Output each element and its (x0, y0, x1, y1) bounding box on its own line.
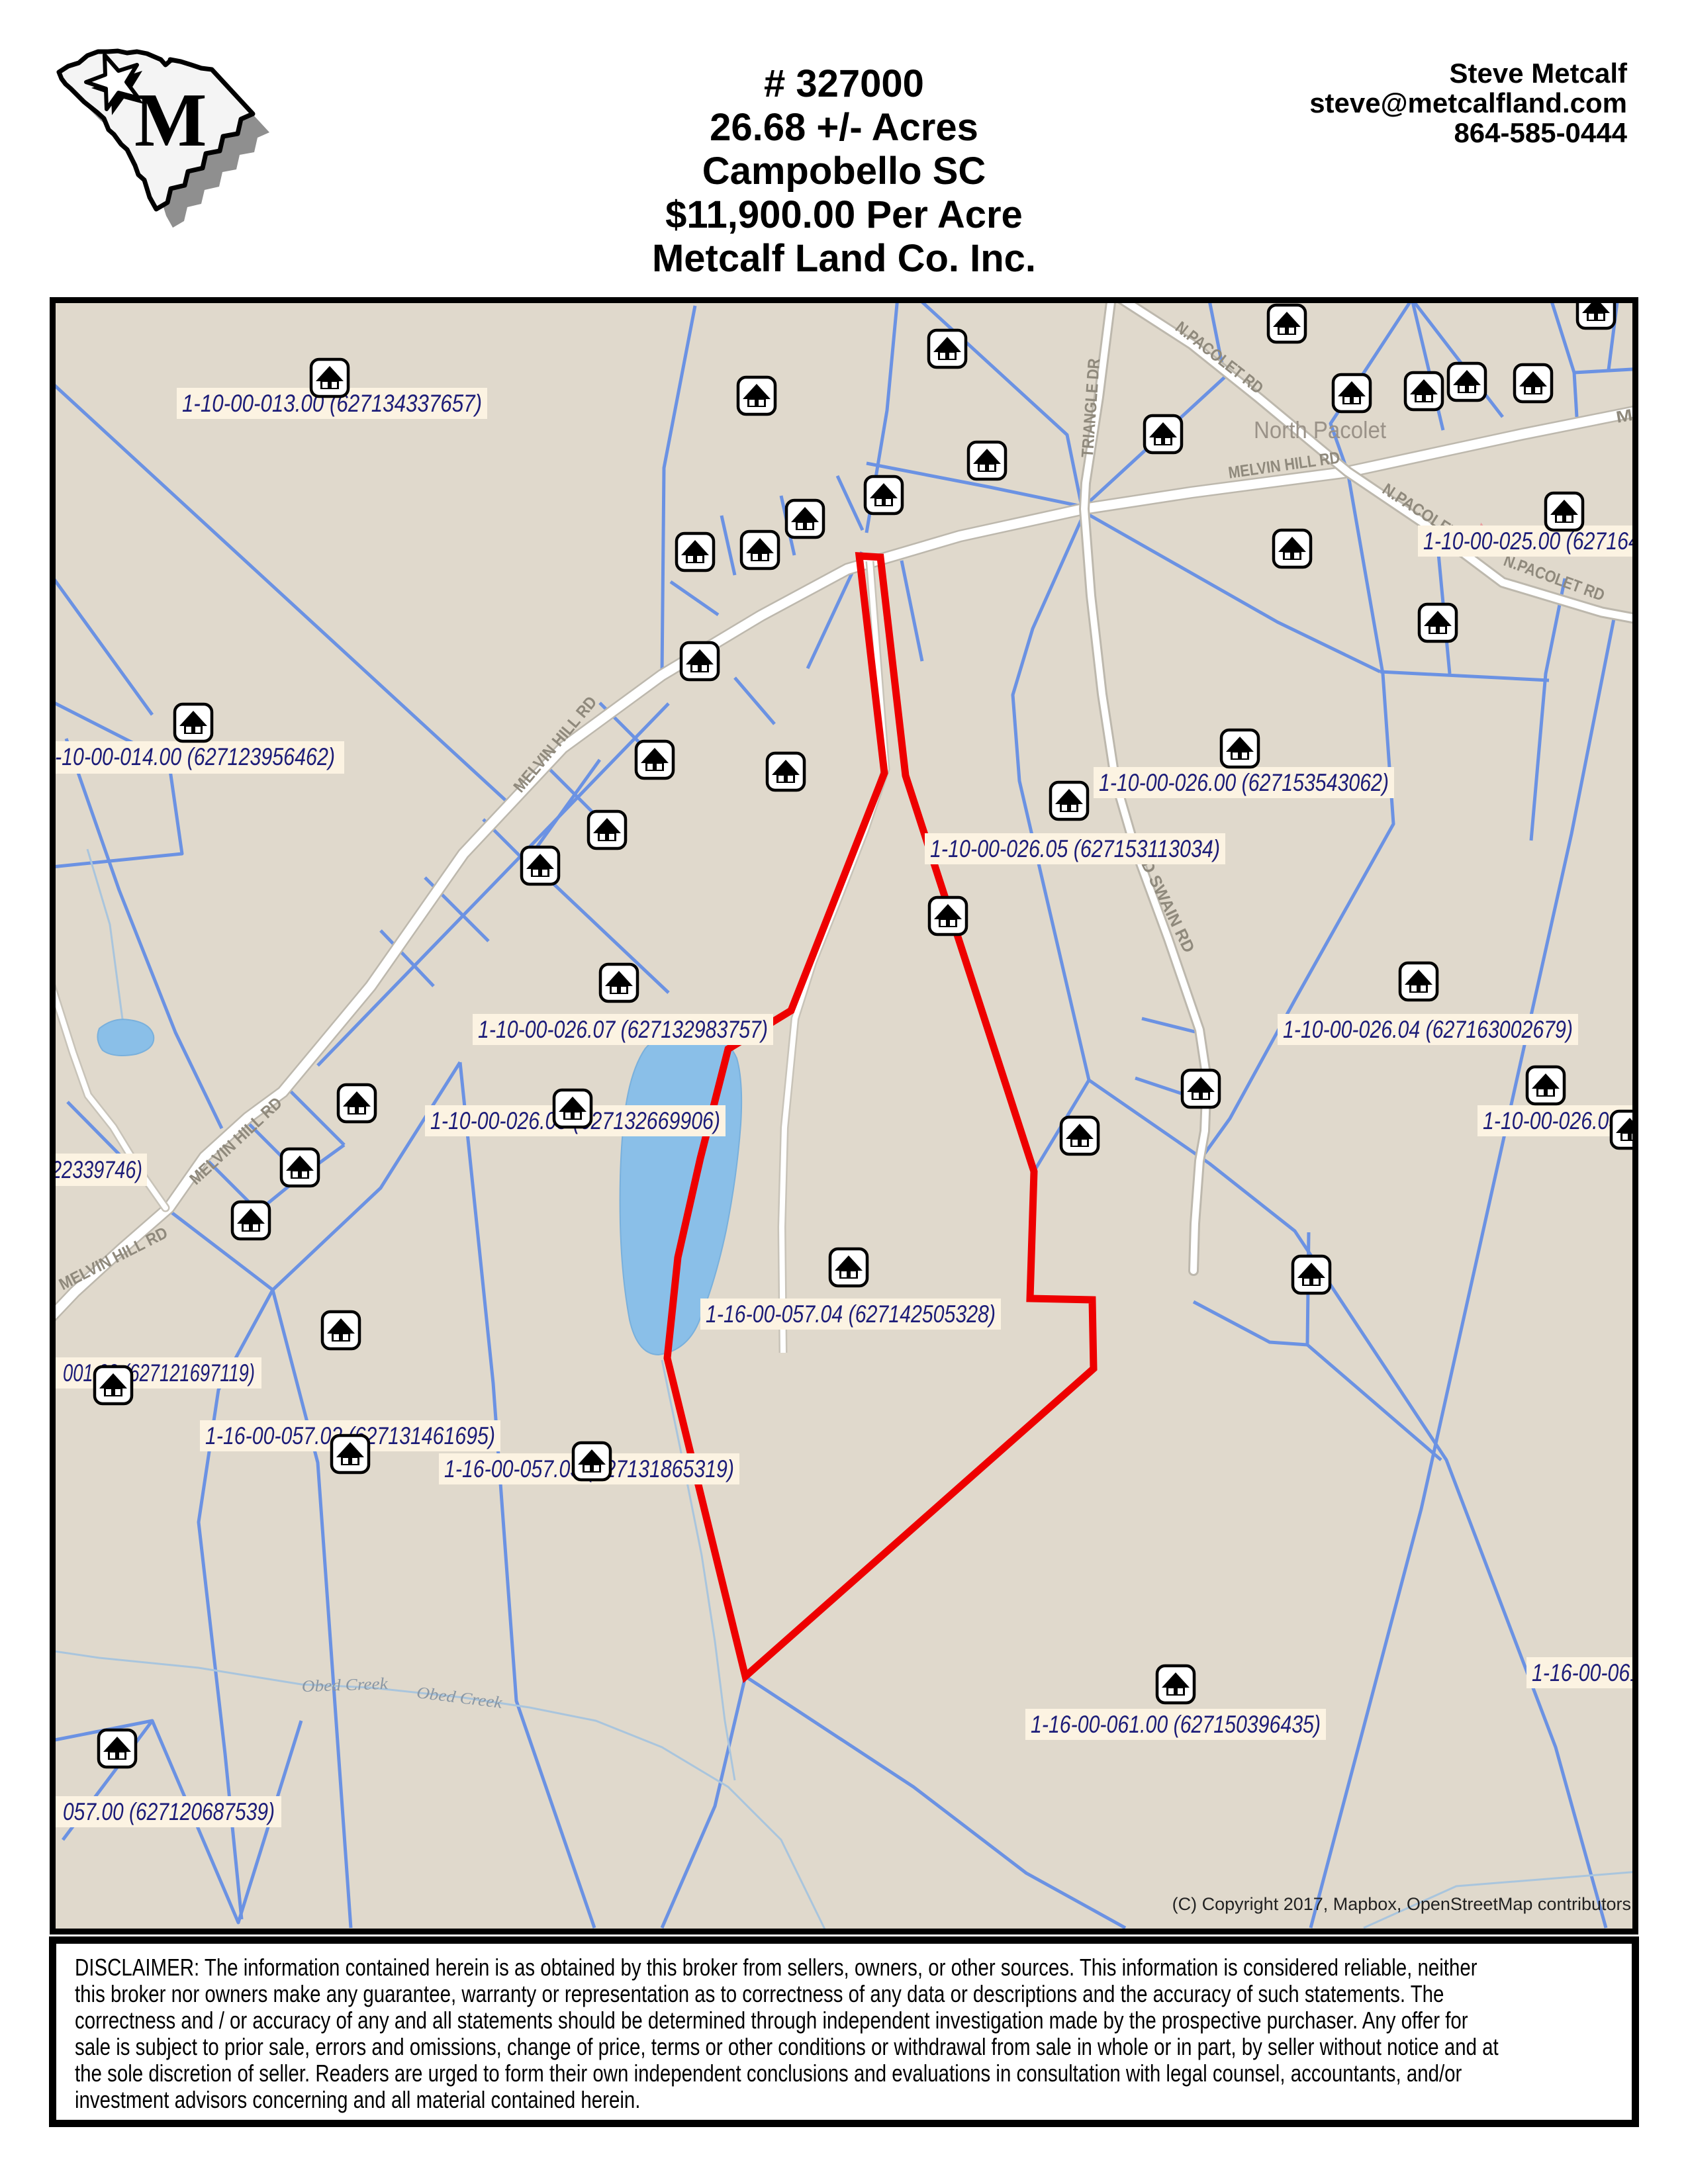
svg-text:1-16-00-057.04 (627142505328): 1-16-00-057.04 (627142505328) (706, 1300, 996, 1328)
svg-text:Obed Creek: Obed Creek (301, 1675, 389, 1696)
svg-text:1-10-00-026.07 (627132983757): 1-10-00-026.07 (627132983757) (478, 1016, 768, 1043)
svg-text:1-10-00-026.04 (627163002679): 1-10-00-026.04 (627163002679) (1283, 1016, 1573, 1043)
svg-text:(C) Copyright 2017, Mapbox, Op: (C) Copyright 2017, Mapbox, OpenStreetMa… (1172, 1894, 1631, 1914)
svg-text:22339746): 22339746) (50, 1156, 142, 1183)
svg-text:057.00 (627120687539): 057.00 (627120687539) (63, 1798, 275, 1825)
svg-text:001.02 (627121697119): 001.02 (627121697119) (63, 1359, 255, 1387)
svg-text:1-10-00-026.00 (627153543062): 1-10-00-026.00 (627153543062) (1099, 769, 1389, 796)
svg-text:1-16-00-061.00 (627150338331): 1-16-00-061.00 (627150338331) (1532, 1659, 1638, 1686)
svg-text:1-10-00-025.00 (627164306364): 1-10-00-025.00 (627164306364) (1423, 527, 1638, 555)
svg-text:North Pacolet: North Pacolet (1254, 416, 1386, 443)
svg-text:-10-00-014.00 (627123956462): -10-00-014.00 (627123956462) (55, 743, 335, 770)
svg-text:1-16-00-061.00 (627150396435): 1-16-00-061.00 (627150396435) (1031, 1711, 1321, 1738)
svg-text:1-10-00-026.05 (627153113034): 1-10-00-026.05 (627153113034) (930, 835, 1220, 862)
